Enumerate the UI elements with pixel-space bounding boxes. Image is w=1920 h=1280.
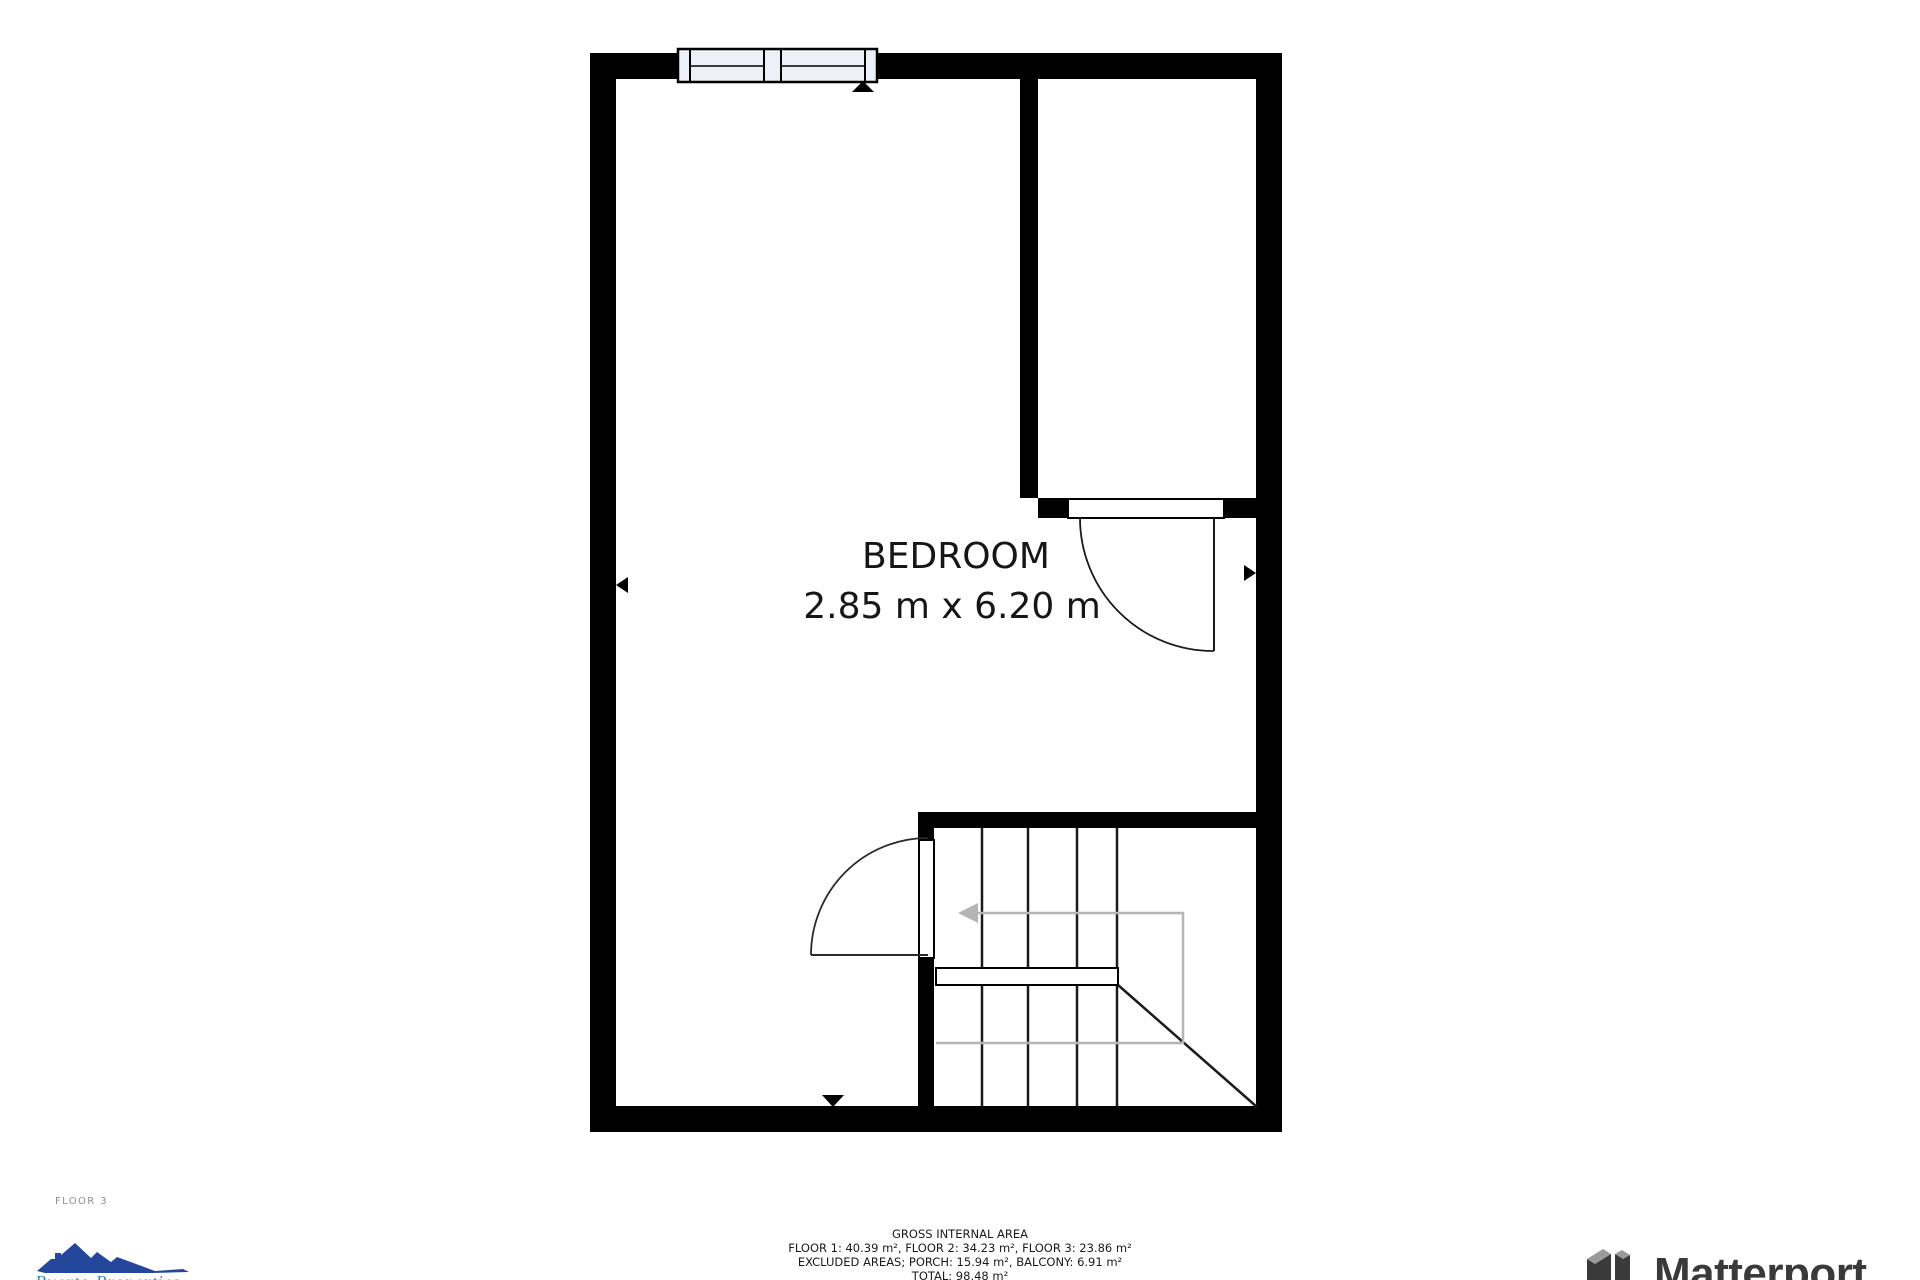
marker-right-icon xyxy=(1244,565,1256,581)
area-summary-total: TOTAL: 98.48 m² xyxy=(660,1269,1260,1280)
stair-partition-lower xyxy=(918,958,934,1106)
matterport-logo: Matterport xyxy=(1584,1245,1867,1280)
room-label: BEDROOM xyxy=(862,536,1050,577)
area-summary-excluded: EXCLUDED AREAS; PORCH: 15.94 m², BALCONY… xyxy=(660,1255,1260,1269)
stair-treads-upper xyxy=(982,828,1117,968)
agency-logo-icon xyxy=(35,1237,195,1273)
window xyxy=(678,49,877,82)
closet-bottom-wall-right xyxy=(1222,498,1256,518)
closet-partition-wall xyxy=(1020,79,1038,498)
floorplan-page: BEDROOM 2.85 m x 6.20 m FLOOR 3 GROSS IN… xyxy=(0,0,1920,1280)
wall-right xyxy=(1256,53,1282,1132)
closet-door-swing-arc xyxy=(1080,518,1214,651)
wall-left xyxy=(590,53,616,1132)
closet-door-threshold xyxy=(1068,499,1224,518)
stair-wall-top xyxy=(918,812,1256,828)
stair-door-swing-arc xyxy=(811,838,928,955)
closet-bottom-wall-left xyxy=(1038,498,1070,518)
stair-door-threshold xyxy=(919,840,934,958)
wall-bottom xyxy=(590,1106,1282,1132)
stair-handrail xyxy=(936,968,1118,985)
walkline-arrow-icon xyxy=(958,903,978,923)
matterport-name: Matterport xyxy=(1654,1252,1867,1280)
agency-name: Puerto Properties xyxy=(35,1272,205,1280)
marker-down-icon xyxy=(822,1095,844,1107)
area-summary-floors: FLOOR 1: 40.39 m², FLOOR 2: 34.23 m², FL… xyxy=(660,1241,1260,1255)
floor-label: FLOOR 3 xyxy=(55,1196,108,1207)
agency-logo: Puerto Properties xyxy=(35,1237,205,1280)
stair-partition-upper xyxy=(918,812,934,840)
marker-left-icon xyxy=(616,577,628,593)
stair-winder-line xyxy=(1118,985,1257,1107)
area-summary: GROSS INTERNAL AREA FLOOR 1: 40.39 m², F… xyxy=(660,1227,1260,1280)
area-summary-title: GROSS INTERNAL AREA xyxy=(660,1227,1260,1241)
staircase xyxy=(811,812,1257,1107)
closet-room xyxy=(1020,79,1256,651)
room-dimensions: 2.85 m x 6.20 m xyxy=(803,586,1101,627)
stair-treads-lower xyxy=(982,985,1117,1106)
floorplan-drawing: BEDROOM 2.85 m x 6.20 m xyxy=(0,0,1920,1280)
matterport-logo-icon xyxy=(1584,1245,1632,1280)
